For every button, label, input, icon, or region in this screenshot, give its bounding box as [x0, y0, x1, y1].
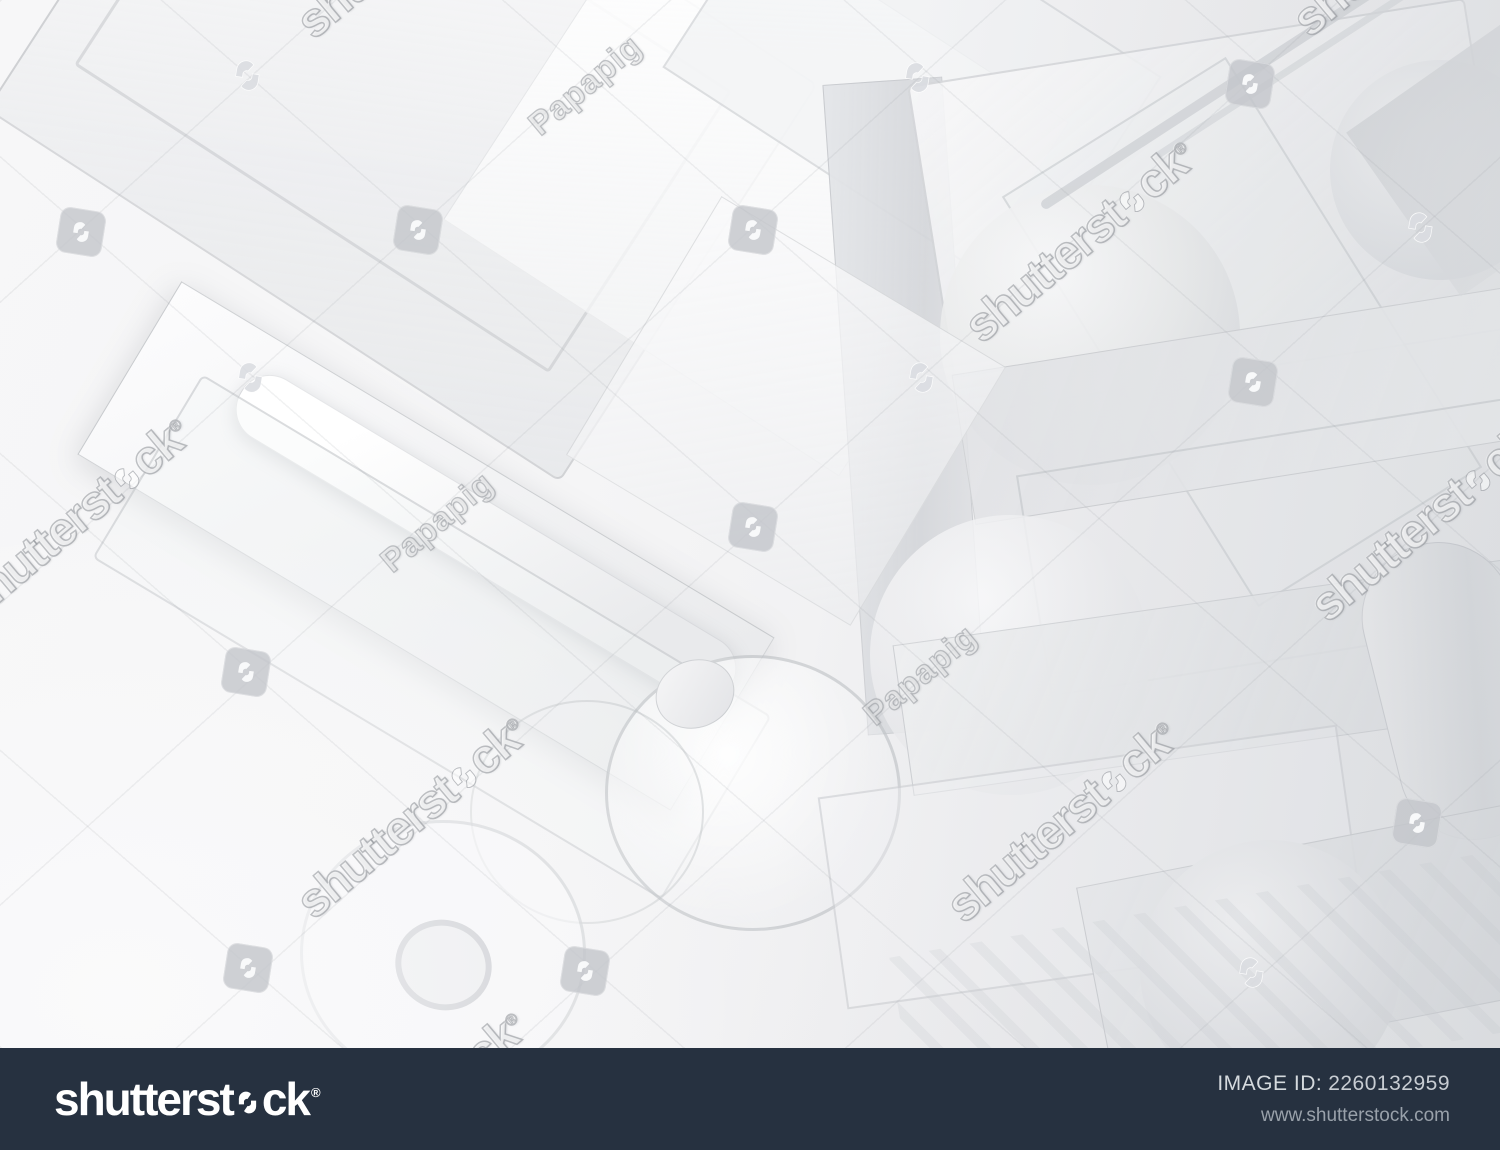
watermark-layer: shutterstck®shutterstck®shutterstck®shut… [0, 0, 1500, 1048]
shutterstock-logo-mark-icon [739, 513, 766, 540]
watermark-diamond-icon [55, 206, 108, 259]
watermark-brand-text: shutterstck® [1282, 0, 1500, 48]
watermark-diamond-icon [559, 945, 612, 998]
watermark-attribution: Papapig [856, 617, 984, 733]
watermark-brand-text: shutterstck® [1300, 409, 1500, 633]
registered-trademark-symbol: ® [311, 1085, 321, 1100]
watermark-brand-text: shutterstck® [0, 407, 201, 631]
watermark-brand-text: shutterstck® [286, 0, 538, 50]
shutterstock-logo-mark-icon [234, 1089, 261, 1116]
shutterstock-logo-mark-icon [1239, 368, 1266, 395]
watermark-attribution: Papapig [373, 464, 501, 580]
stock-photo-artwork: shutterstck®shutterstck®shutterstck®shut… [0, 0, 1500, 1048]
shutterstock-logo-mark-icon [227, 55, 268, 96]
watermark-brand-text: shutterstck® [286, 706, 538, 930]
watermark-brand-text: shutterstck® [954, 130, 1206, 354]
watermark-mark-icon [1230, 952, 1272, 998]
watermark-mark-icon [900, 357, 942, 403]
shutterstock-logo-mark-icon [897, 57, 938, 98]
logo-mark-slot [233, 1073, 262, 1125]
shutterstock-logo-mark-icon [901, 357, 942, 398]
watermark-brand-text: shutterstck® [936, 710, 1188, 934]
logo-text-part2: ck [262, 1073, 309, 1125]
watermark-diamond-icon [727, 501, 780, 554]
watermark-diamond-icon [392, 204, 445, 257]
shutterstock-logo: shutterstck® [54, 1072, 321, 1126]
shutterstock-logo-mark-icon [234, 954, 261, 981]
watermark-diamond-icon [727, 204, 780, 257]
shutterstock-logo-mark-icon [404, 216, 431, 243]
logo-text-part1: shutterst [54, 1073, 233, 1125]
shutterstock-logo-mark-icon [232, 658, 259, 685]
watermark-diamond-icon [1227, 356, 1280, 409]
shutterstock-logo-mark-icon [571, 957, 598, 984]
shutterstock-logo-mark-icon [67, 218, 94, 245]
watermark-diamond-icon [220, 646, 273, 699]
shutterstock-logo-mark-icon [1403, 809, 1430, 836]
image-id-label: IMAGE ID: [1217, 1072, 1322, 1095]
watermark-diamond-icon [222, 942, 275, 995]
shutterstock-logo-mark-icon [1231, 952, 1272, 993]
image-id-value: 2260132959 [1328, 1072, 1450, 1095]
watermark-diamond-icon [1391, 797, 1444, 850]
watermark-brand-text: shutterstck® [285, 1001, 537, 1048]
watermark-mark-icon [1399, 207, 1441, 253]
watermark-attribution: Papapig [521, 27, 649, 143]
watermark-mark-icon [229, 357, 271, 403]
stock-photo-preview: shutterstck®shutterstck®shutterstck®shut… [0, 0, 1500, 1150]
watermark-footer-bar: shutterstck® IMAGE ID:2260132959 www.shu… [0, 1048, 1500, 1150]
website-url: www.shutterstock.com [1217, 1105, 1450, 1127]
watermark-mark-icon [896, 57, 938, 103]
shutterstock-logo-mark-icon [1400, 207, 1441, 248]
watermark-diamond-icon [1224, 58, 1277, 111]
image-meta: IMAGE ID:2260132959 www.shutterstock.com [1217, 1072, 1450, 1127]
image-id: IMAGE ID:2260132959 [1217, 1072, 1450, 1096]
shutterstock-logo-mark-icon [230, 357, 271, 398]
watermark-mark-icon [226, 55, 268, 101]
shutterstock-logo-mark-icon [1236, 70, 1263, 97]
shutterstock-logo-mark-icon [739, 216, 766, 243]
